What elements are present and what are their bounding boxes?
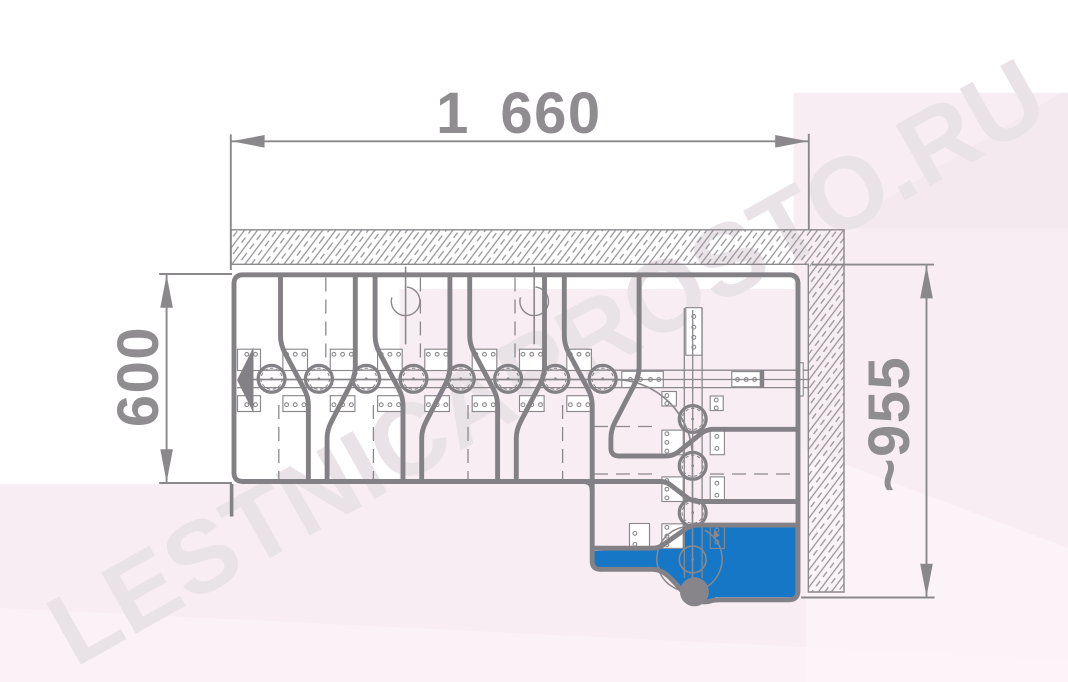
svg-text:660: 660 xyxy=(500,81,601,146)
svg-text:1: 1 xyxy=(436,81,470,146)
svg-text:600: 600 xyxy=(106,326,171,427)
svg-text:~955: ~955 xyxy=(857,356,922,493)
